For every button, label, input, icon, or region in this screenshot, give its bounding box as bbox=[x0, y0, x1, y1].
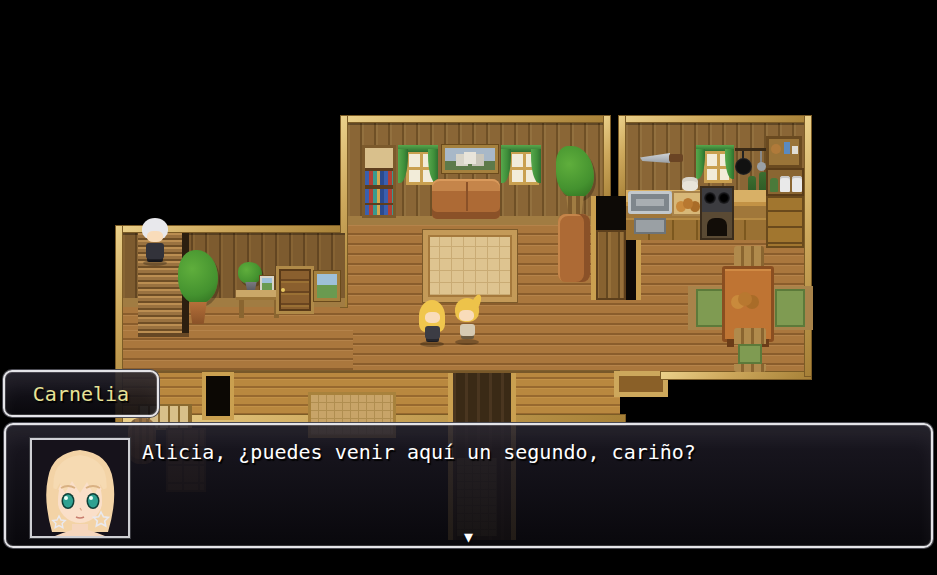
dining-chair-bottom bbox=[734, 328, 766, 372]
stove bbox=[700, 186, 734, 240]
dining-chair-right bbox=[772, 286, 813, 330]
curtained-window bbox=[501, 145, 541, 185]
message-box[interactable]: Alicia, ¿puedes venir aquí un segundo, c… bbox=[4, 423, 933, 548]
floor-left-lower bbox=[123, 330, 353, 375]
rug bbox=[423, 230, 517, 302]
trim bbox=[340, 115, 611, 123]
wooden-door bbox=[276, 266, 314, 314]
sink bbox=[628, 191, 672, 214]
castle-painting bbox=[442, 145, 498, 173]
carnelia-portrait bbox=[32, 440, 128, 536]
curtained-window bbox=[398, 145, 438, 185]
dresser bbox=[766, 196, 804, 248]
trim bbox=[618, 115, 626, 203]
trim bbox=[618, 115, 812, 123]
dishes bbox=[682, 181, 698, 191]
sink-cabinet bbox=[634, 218, 666, 234]
wall-knife bbox=[640, 151, 684, 165]
south-door bbox=[202, 372, 234, 420]
character-white-hair bbox=[140, 218, 170, 264]
tall-plant bbox=[556, 146, 594, 220]
landscape-painting bbox=[314, 271, 340, 301]
character-blonde-ponytail bbox=[452, 298, 482, 343]
passage-door bbox=[596, 230, 626, 300]
potted-plant bbox=[178, 250, 218, 326]
name-box: Carnelia bbox=[3, 370, 159, 417]
message-text: Alicia, ¿puedes venir aquí un segundo, c… bbox=[142, 436, 912, 532]
leather-sofa bbox=[432, 179, 500, 219]
leather-armchair bbox=[558, 214, 590, 282]
game-screen: { "screen": {"width": 937, "height": 575… bbox=[0, 0, 937, 575]
wall-shelf bbox=[766, 136, 802, 168]
jar-shelf bbox=[766, 168, 804, 196]
character-blonde-long-hair bbox=[417, 300, 447, 345]
bookshelf bbox=[362, 145, 396, 218]
portrait-frame bbox=[30, 438, 130, 538]
trim bbox=[804, 115, 812, 377]
bread-basket bbox=[738, 292, 752, 306]
kitchen-bottom-trim bbox=[660, 371, 812, 380]
continue-indicator-icon: ▼ bbox=[464, 530, 473, 545]
name-box-text: Carnelia bbox=[5, 372, 157, 415]
trim bbox=[603, 115, 611, 203]
kitchen-window bbox=[696, 145, 734, 181]
